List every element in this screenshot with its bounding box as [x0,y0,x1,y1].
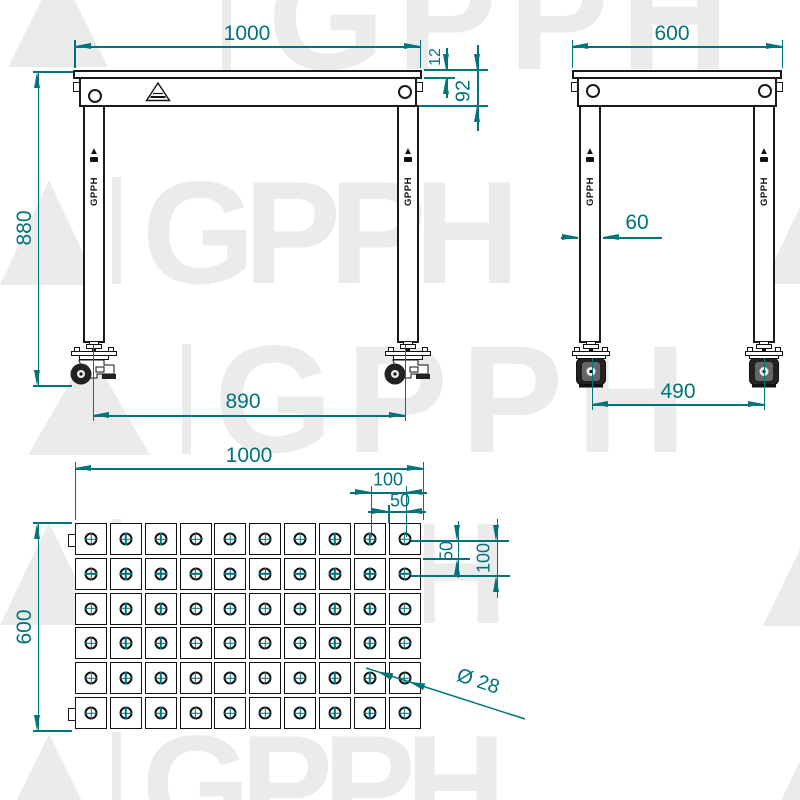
dim-line [572,46,782,48]
arrowhead [454,559,460,575]
dim-line [38,523,40,731]
arrowhead [443,78,449,94]
dim-line [75,468,423,470]
arrowhead [766,43,782,49]
arrowhead [474,106,480,122]
ext-line [405,345,407,421]
dim-side-depth: 600 [654,22,689,46]
arrowhead [75,43,91,49]
arrowhead [407,465,423,471]
dim-line [93,415,405,417]
dim-line [592,404,764,406]
arrowhead [454,525,460,541]
arrowhead [372,508,388,514]
ext-line [424,77,455,79]
arrowhead [562,234,578,240]
dim-top-depth: 600 [13,609,37,644]
technical-drawing-canvas: GPPHGPPHGPPHGPPHGPPH [0,0,800,800]
dim-top-hole-half-pitch-x: 50 [390,491,410,512]
dim-top-hole-pitch-y: 100 [474,543,495,573]
arrowhead [34,72,40,88]
arrowhead [34,715,40,731]
arrowhead [474,54,480,70]
dim-front-wheel-span: 890 [225,390,260,414]
arrowhead [389,412,405,418]
arrowhead [592,401,608,407]
arrowhead [572,43,588,49]
arrowhead [355,489,371,495]
arrowhead [404,43,420,49]
dim-line [75,46,420,48]
dim-top-width: 1000 [226,444,273,468]
dim-front-width: 1000 [224,22,271,46]
ext-line [93,345,95,421]
arrowhead [603,234,619,240]
dim-side-wheel-span: 490 [660,380,695,404]
dim-front-top-height: 92 [453,80,476,102]
dim-top-hole-pitch-x: 100 [373,470,403,491]
dim-top-hole-half-pitch-y: 50 [437,541,458,561]
dim-line [38,72,40,386]
hole-diameter-leader [360,659,530,724]
arrowhead [93,412,109,418]
dimensions-layer: 1000 12 92 880 890 600 [0,0,800,800]
arrowhead [493,525,499,541]
arrowhead [748,401,764,407]
dim-front-plate-thickness: 12 [427,48,445,66]
dim-side-leg-width: 60 [625,211,648,235]
dim-front-total-height: 880 [13,210,37,245]
arrowhead [34,370,40,386]
arrowhead [75,465,91,471]
arrowhead [34,523,40,539]
arrowhead [493,576,499,592]
